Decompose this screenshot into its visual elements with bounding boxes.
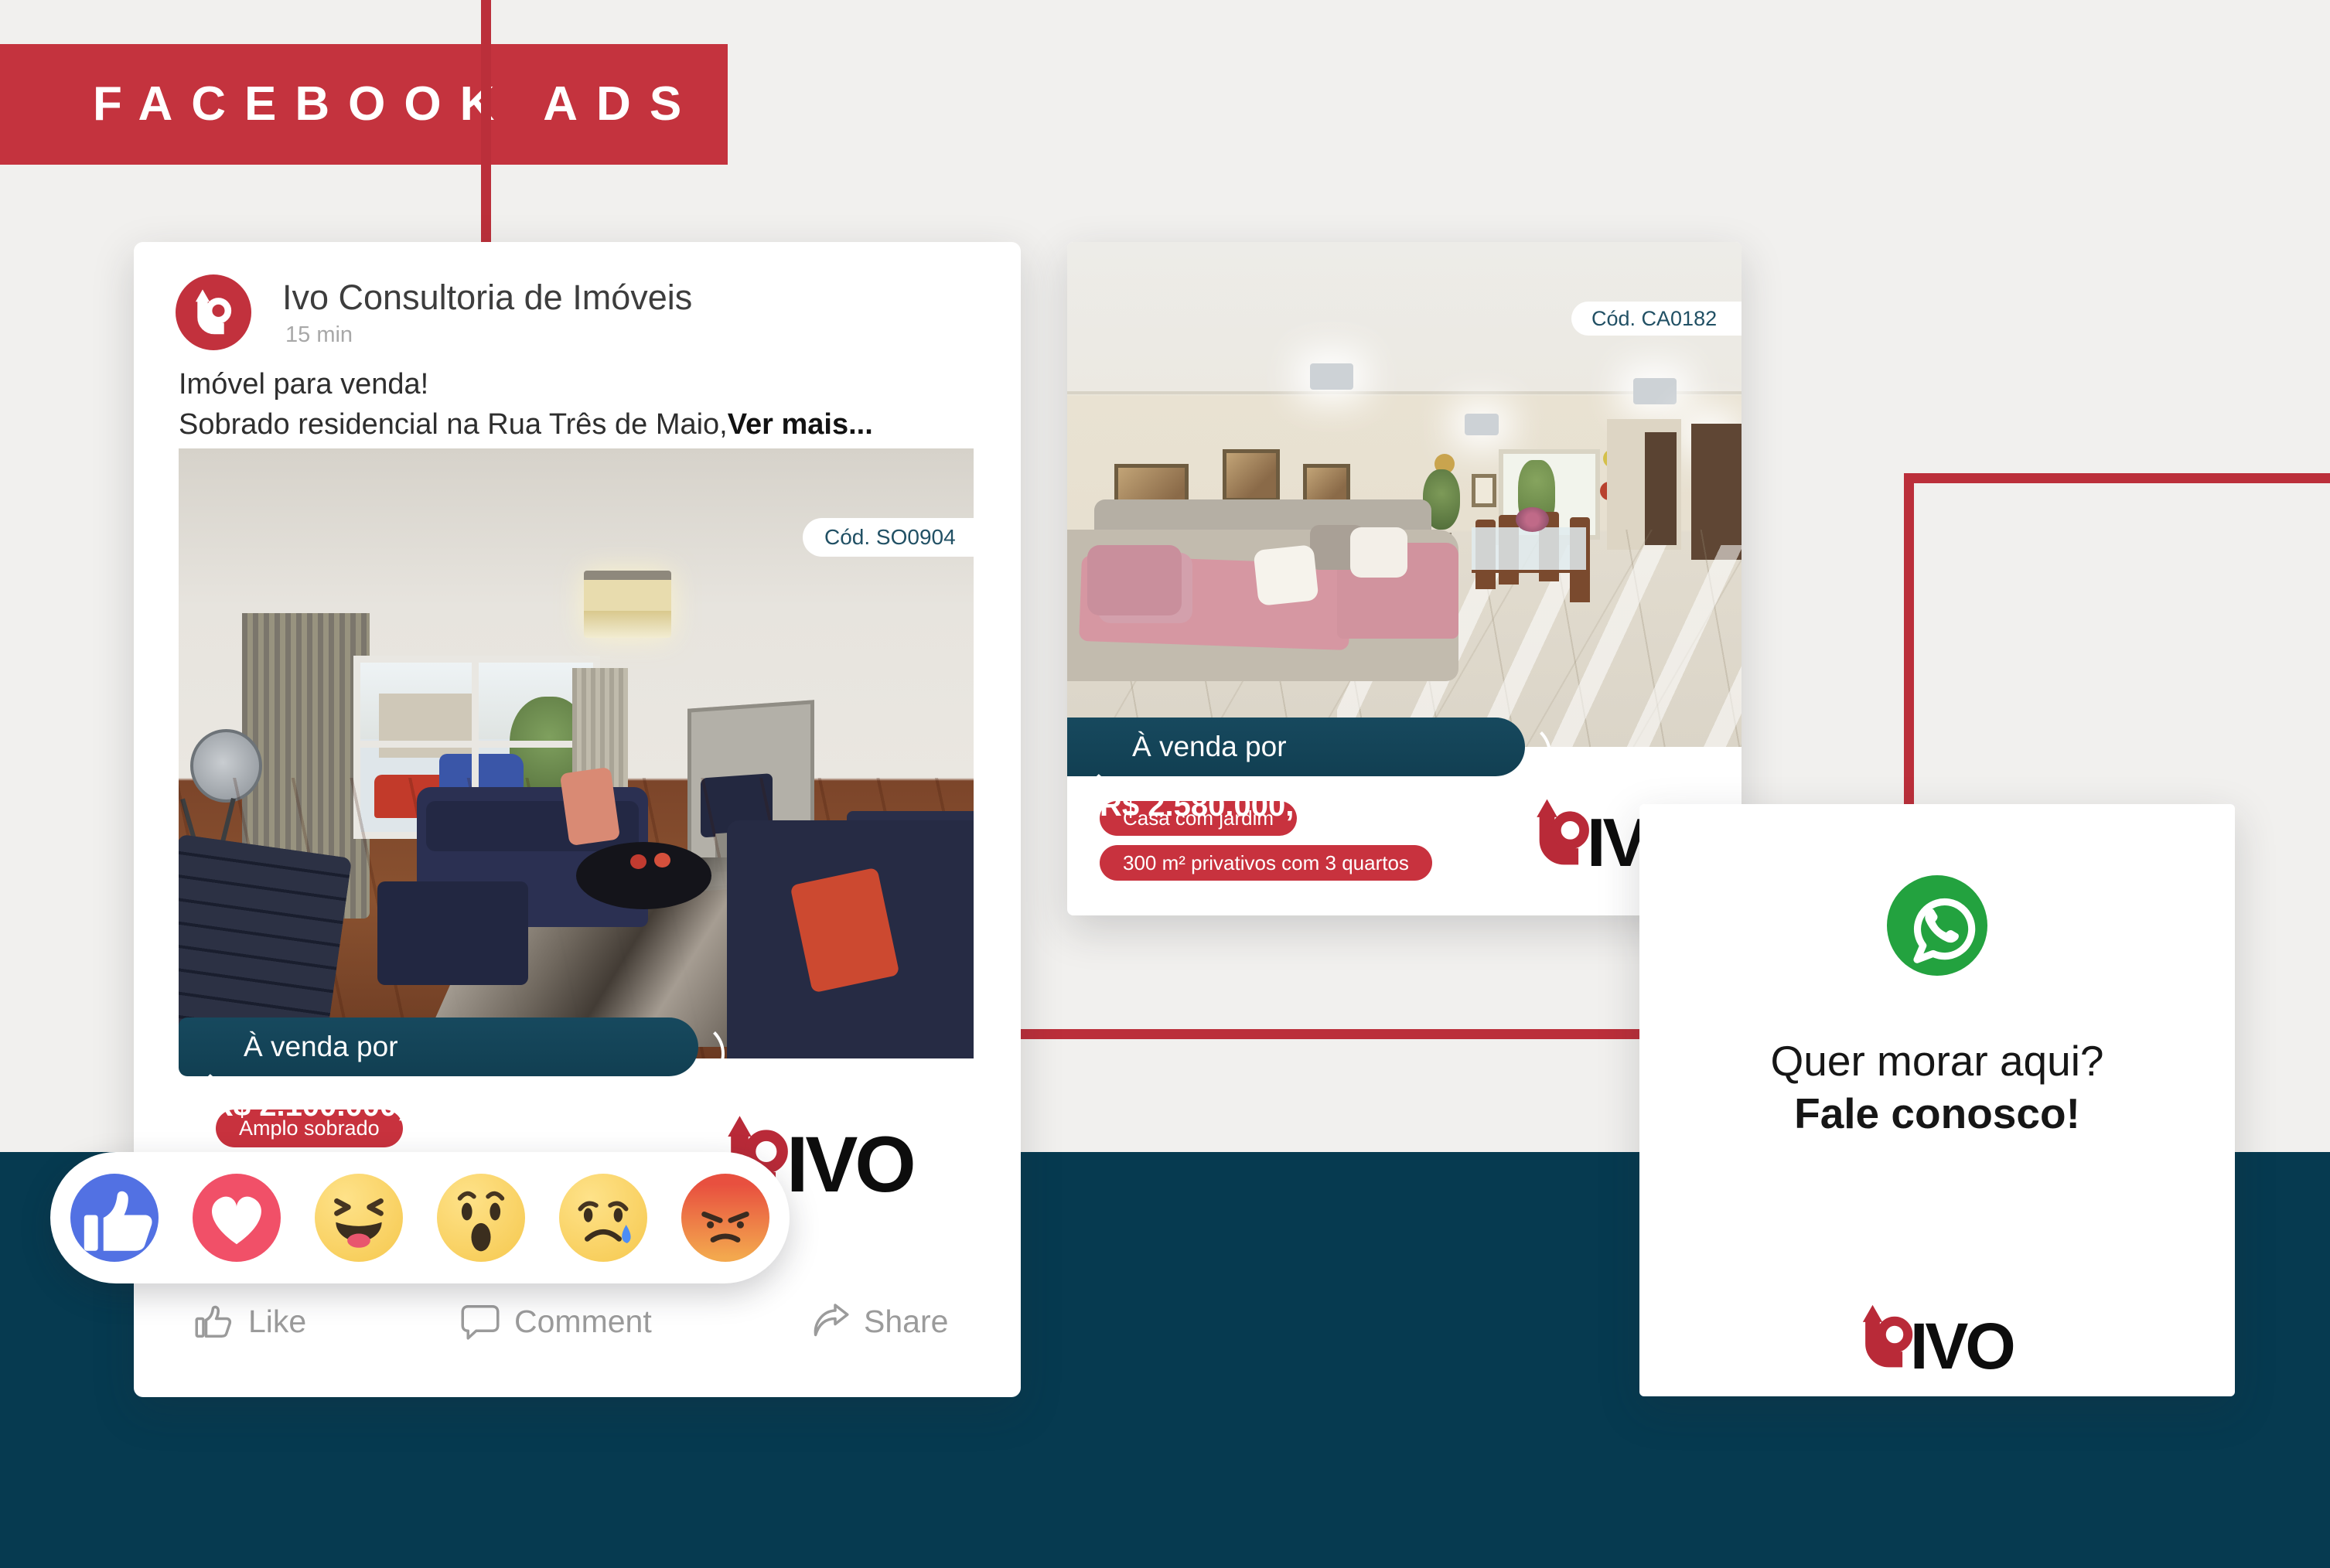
ivo-logo-text: IVO: [786, 1133, 913, 1198]
reaction-haha-icon[interactable]: [315, 1174, 403, 1262]
whatsapp-icon[interactable]: [1887, 875, 1987, 976]
price-value: R$ 2.100.000,00: [211, 1089, 440, 1123]
post-text-line1: Imóvel para venda!: [179, 364, 983, 404]
price-text: À venda por R$ 2.100.000,00: [179, 1017, 698, 1136]
comment-button[interactable]: Comment: [459, 1300, 652, 1343]
pink-pillows: [1087, 545, 1182, 615]
ivo-logo-3: IVO: [1858, 1300, 2013, 1373]
property-code-text: Cód. SO0904: [824, 525, 956, 550]
like-icon: [193, 1300, 236, 1343]
hallway-door: [1645, 432, 1676, 545]
white-fluffy-pillow2: [1350, 527, 1407, 578]
wall-certificate: [1472, 474, 1496, 506]
reaction-sad-icon[interactable]: [559, 1174, 647, 1262]
decor-vertical-line-top: [481, 0, 491, 242]
post-text-line2: Sobrado residencial na Rua Três de Maio,…: [179, 404, 983, 445]
decor-horizontal-line-middle: [959, 1029, 1647, 1039]
property-code-badge: Cód. SO0904: [803, 518, 974, 557]
share-icon: [808, 1300, 851, 1343]
ivo-logo-glyph-icon-3: [1858, 1300, 1918, 1373]
page-name[interactable]: Ivo Consultoria de Imóveis: [282, 278, 692, 318]
wall-art-2: [1223, 449, 1280, 503]
reaction-love-icon[interactable]: [193, 1174, 281, 1262]
whatsapp-cta-card: Quer morar aqui? Fale conosco! IVO: [1639, 804, 2235, 1396]
dining-table: [1472, 527, 1586, 573]
ivo-logo-text-3: IVO: [1910, 1320, 2013, 1373]
window-building: [379, 694, 472, 758]
coffee-table: [576, 842, 711, 909]
share-button[interactable]: Share: [808, 1300, 948, 1343]
ivo-logo-glyph-icon-2: [1531, 795, 1595, 871]
salmon-pillow: [560, 767, 620, 847]
post-text: Imóvel para venda! Sobrado residencial n…: [179, 364, 983, 445]
like-button[interactable]: Like: [193, 1300, 306, 1343]
decor-corner-line-horizontal: [1904, 473, 2330, 483]
reaction-wow-icon[interactable]: [437, 1174, 525, 1262]
design-canvas: FACEBOOK ADS Ivo Consultoria de Imóveis …: [0, 0, 2330, 1568]
decor-corner-line-vertical: [1904, 473, 1914, 860]
orange-pillow: [790, 868, 900, 994]
armchair-right: [727, 820, 974, 1058]
property-code-text-2: Cód. CA0182: [1591, 307, 1717, 331]
price-text-2: À venda por R$ 2.580.000,00: [1067, 718, 1525, 836]
reactions-bar: [50, 1152, 790, 1283]
ceiling-light3: [1633, 378, 1677, 404]
see-more-link[interactable]: Ver mais...: [728, 408, 873, 441]
reaction-like-icon[interactable]: [70, 1174, 159, 1262]
feature-tag-area: 300 m² privativos com 3 quartos: [1100, 845, 1432, 881]
cta-subline: Fale conosco!: [1639, 1089, 2235, 1138]
comment-icon: [459, 1300, 502, 1343]
property-code-badge-2: Cód. CA0182: [1571, 302, 1742, 336]
price-value-2: R$ 2.580.000,00: [1100, 789, 1329, 823]
reaction-angry-icon[interactable]: [681, 1174, 769, 1262]
facebook-ads-title: FACEBOOK ADS: [93, 44, 728, 165]
white-fluffy-pillow: [1254, 544, 1320, 606]
cta-headline: Quer morar aqui?: [1639, 1036, 2235, 1086]
avatar[interactable]: [176, 274, 251, 350]
red-cup2: [654, 853, 670, 868]
ceiling-light2: [1465, 414, 1499, 435]
ceiling-light: [1310, 363, 1353, 390]
post-timestamp: 15 min: [285, 322, 353, 348]
red-cup: [630, 854, 646, 869]
price-ribbon-2: À venda por R$ 2.580.000,00: [1067, 718, 1525, 776]
price-ribbon: À venda por R$ 2.100.000,00: [179, 1017, 698, 1076]
chandelier: [584, 571, 671, 638]
ottoman: [377, 881, 528, 985]
facebook-ads-banner: FACEBOOK ADS: [0, 44, 728, 165]
brand-glyph-icon: [192, 288, 235, 336]
